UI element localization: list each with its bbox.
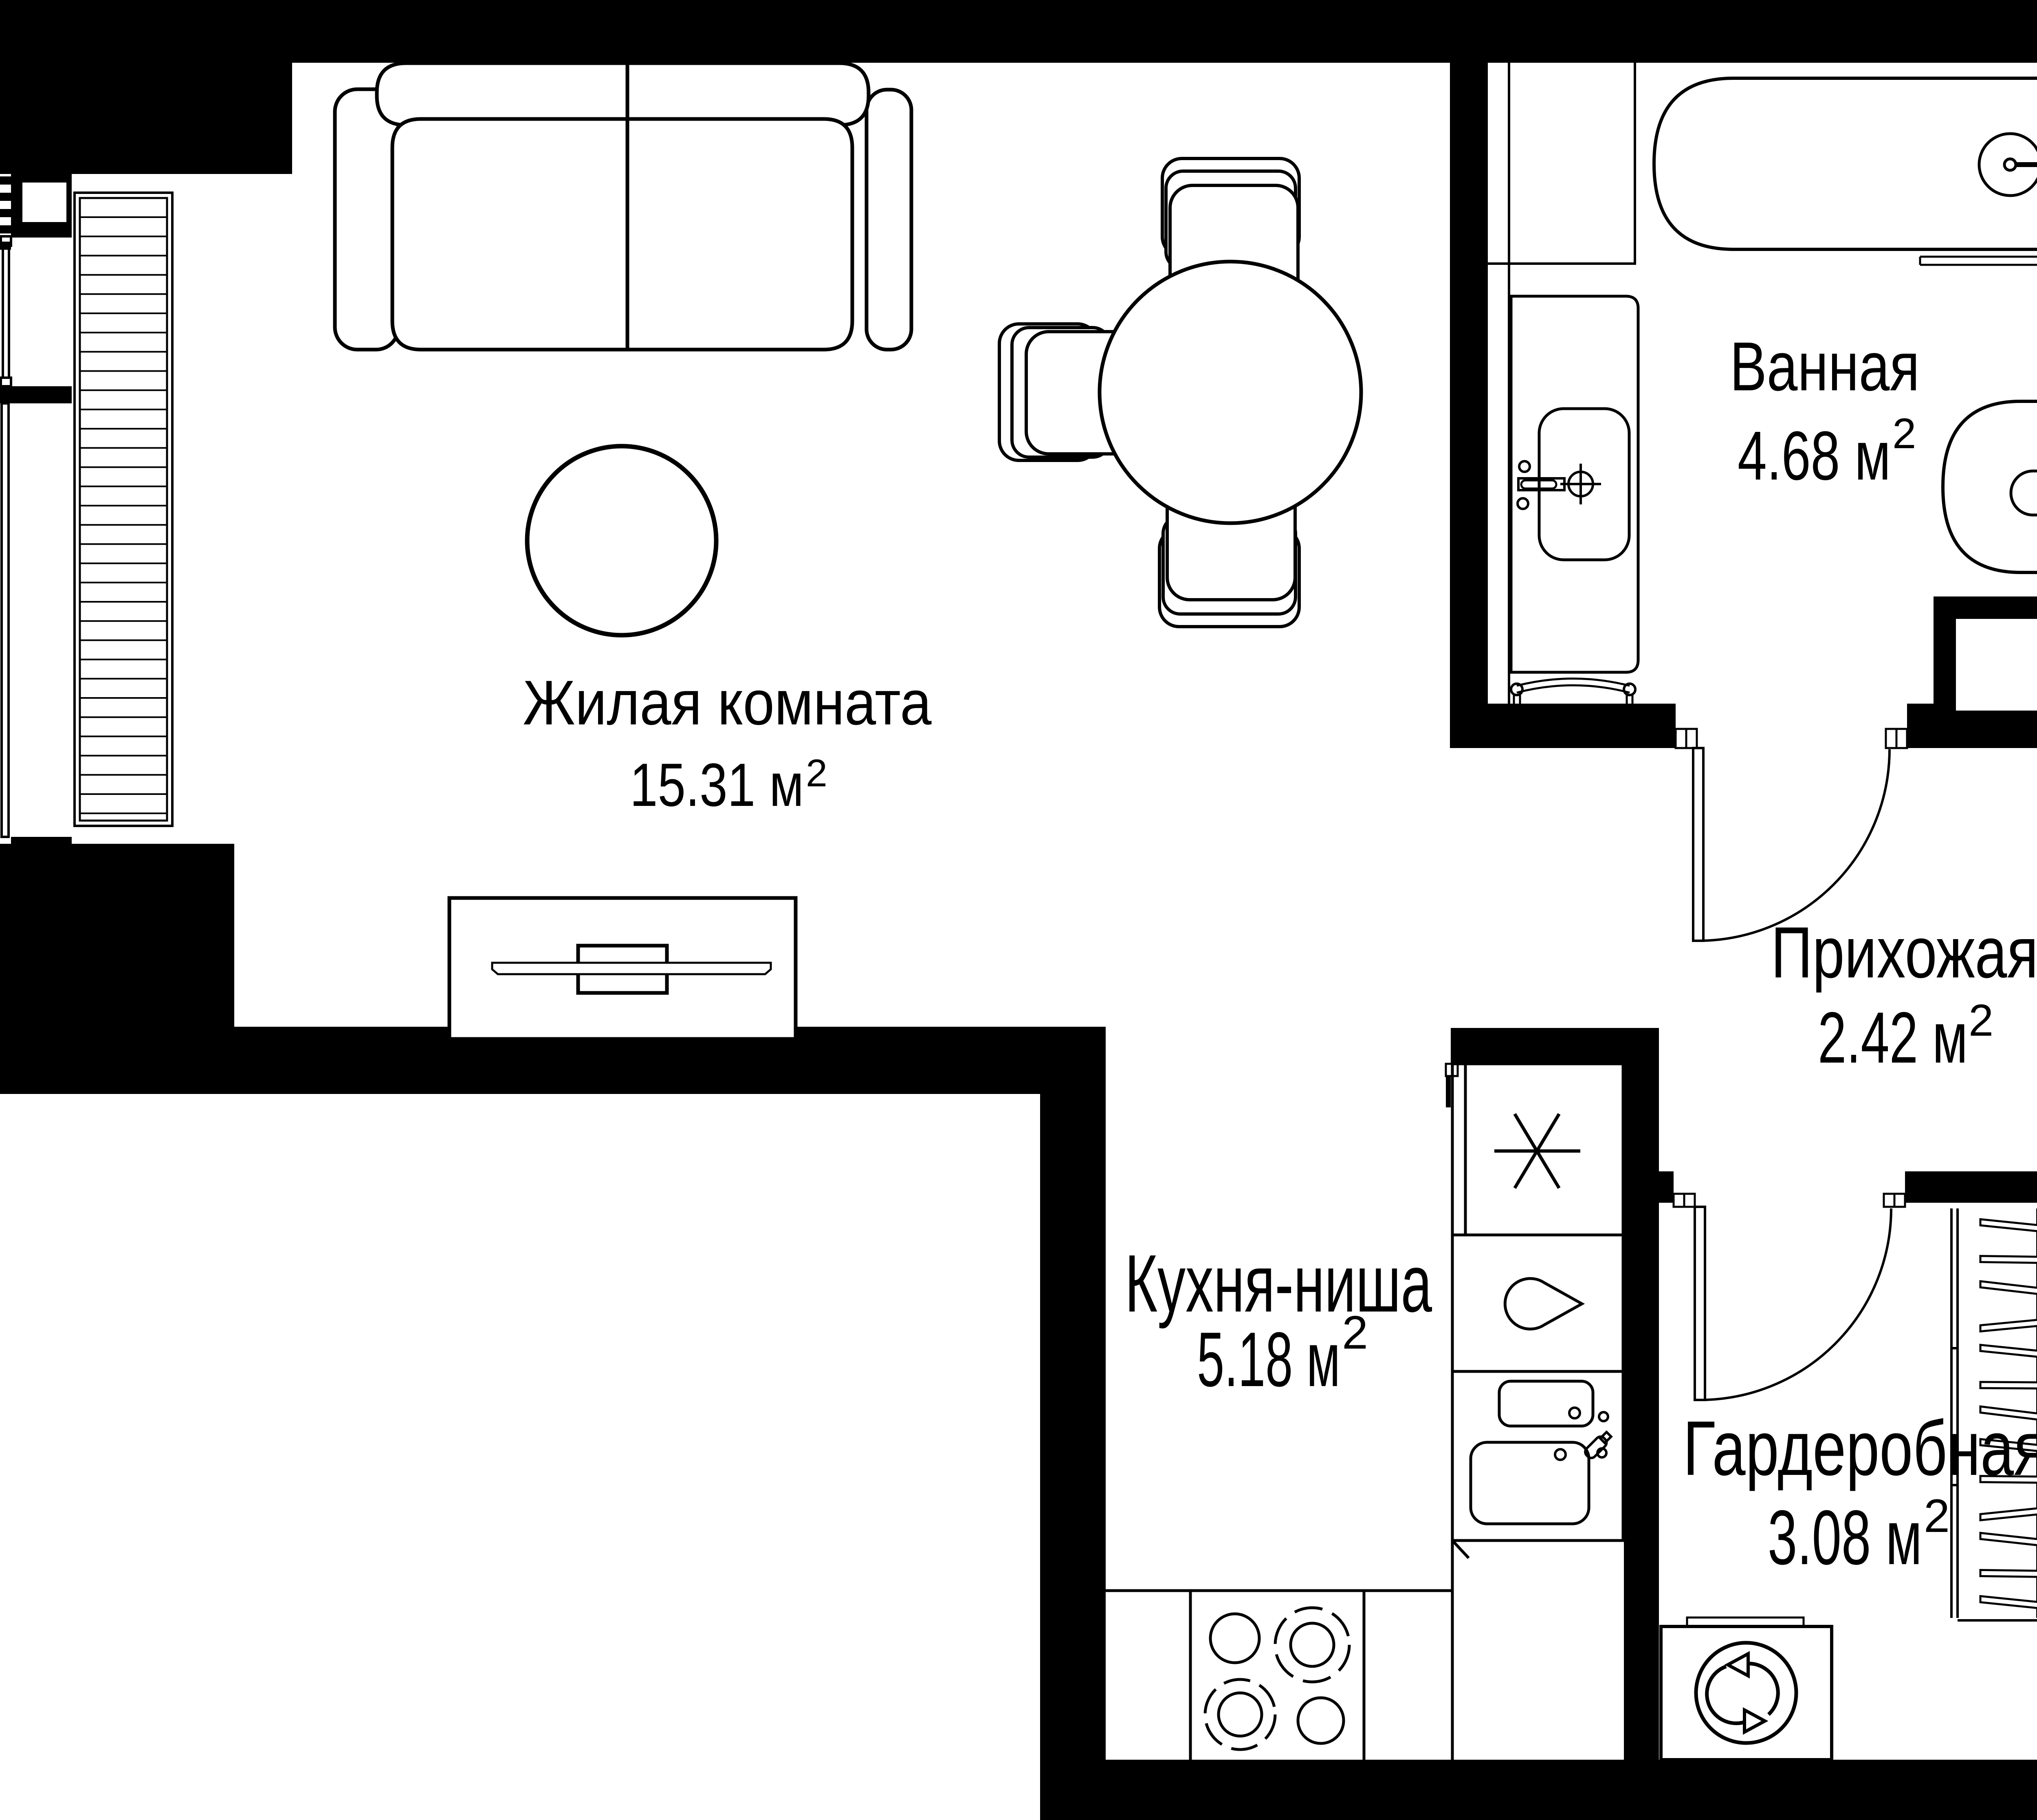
svg-text:2: 2 bbox=[806, 752, 827, 795]
svg-text:Гардеробная: Гардеробная bbox=[1683, 1405, 2037, 1492]
svg-text:Ванная: Ванная bbox=[1730, 328, 1920, 405]
svg-text:4.68 м: 4.68 м bbox=[1738, 417, 1891, 495]
svg-text:5.18 м: 5.18 м bbox=[1197, 1316, 1340, 1403]
svg-text:2.42 м: 2.42 м bbox=[1818, 997, 1968, 1078]
svg-text:15.31 м: 15.31 м bbox=[630, 750, 804, 819]
svg-text:Кухня-ниша: Кухня-ниша bbox=[1125, 1238, 1432, 1329]
svg-text:2: 2 bbox=[1892, 410, 1916, 458]
svg-text:Жилая комната: Жилая комната bbox=[523, 667, 932, 738]
svg-text:Прихожая: Прихожая bbox=[1771, 912, 2037, 993]
svg-text:2: 2 bbox=[1969, 995, 1993, 1045]
svg-text:3.08 м: 3.08 м bbox=[1768, 1494, 1922, 1581]
svg-text:2: 2 bbox=[1924, 1490, 1950, 1542]
svg-text:2: 2 bbox=[1342, 1307, 1368, 1359]
